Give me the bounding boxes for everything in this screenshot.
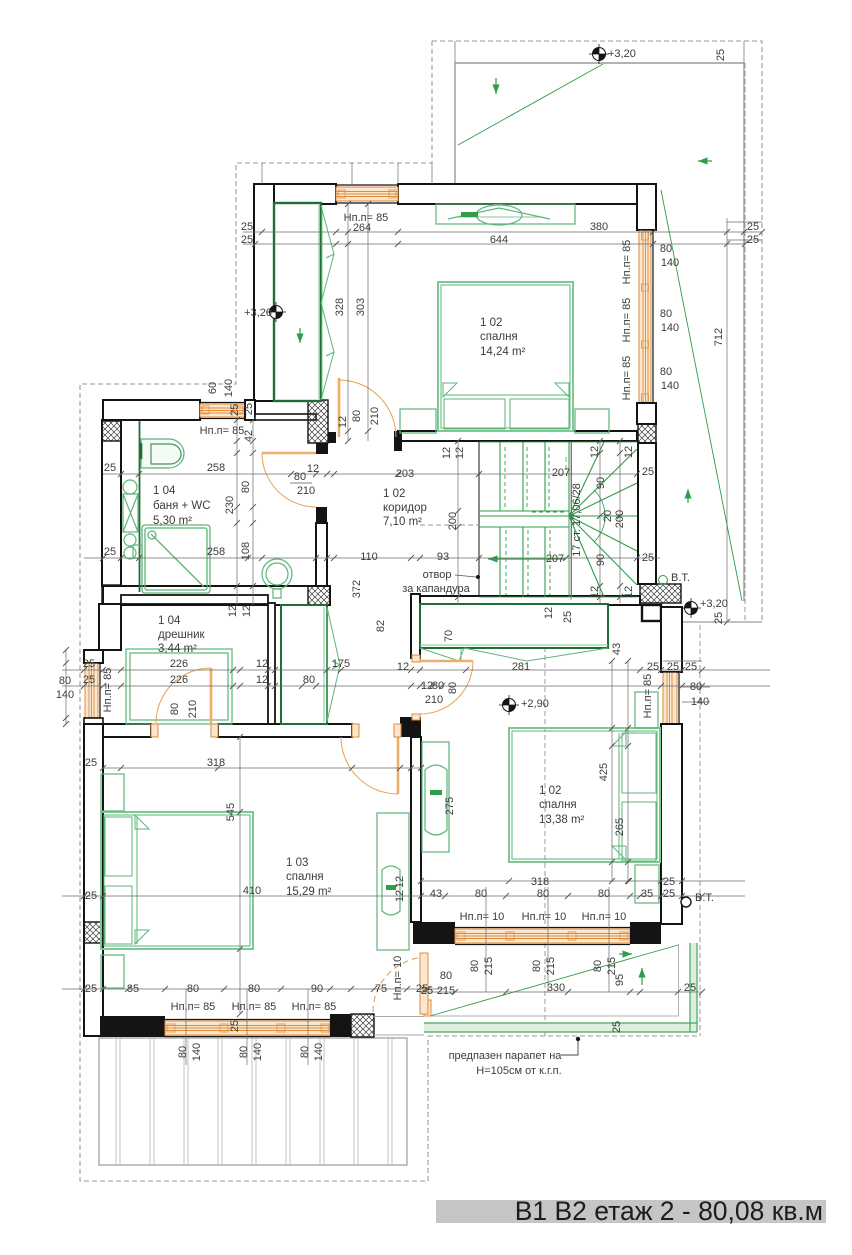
svg-text:43: 43 (611, 643, 623, 655)
svg-text:+2,90: +2,90 (521, 698, 549, 710)
svg-text:за капандура: за капандура (402, 583, 470, 595)
svg-text:328: 328 (334, 298, 346, 316)
svg-text:80: 80 (531, 960, 543, 972)
svg-text:12: 12 (227, 605, 239, 617)
svg-text:25: 25 (747, 234, 759, 246)
svg-text:215: 215 (606, 957, 618, 975)
svg-text:12: 12 (543, 607, 555, 619)
svg-text:80: 80 (303, 674, 315, 686)
svg-text:712: 712 (713, 328, 725, 346)
svg-text:80: 80 (660, 243, 672, 255)
svg-text:Нп.п= 85: Нп.п= 85 (292, 1001, 337, 1013)
svg-text:70: 70 (443, 630, 455, 642)
svg-text:140: 140 (223, 379, 235, 397)
svg-text:644: 644 (490, 234, 508, 246)
svg-text:380: 380 (590, 221, 608, 233)
svg-text:25: 25 (229, 404, 241, 416)
svg-text:210: 210 (425, 694, 443, 706)
svg-text:258: 258 (207, 546, 225, 558)
svg-text:спалня: спалня (539, 799, 577, 811)
svg-text:25: 25 (713, 612, 725, 624)
svg-text:80: 80 (59, 675, 71, 687)
svg-text:25: 25 (83, 658, 95, 670)
svg-text:140: 140 (661, 257, 679, 269)
svg-text:1 03: 1 03 (286, 857, 308, 869)
svg-text:80: 80 (177, 1046, 189, 1058)
svg-text:20: 20 (602, 510, 614, 522)
svg-text:+3,20: +3,20 (608, 48, 636, 60)
svg-text:Нп.п= 85: Нп.п= 85 (621, 240, 633, 285)
svg-text:1 02: 1 02 (383, 488, 405, 500)
svg-text:80: 80 (447, 682, 459, 694)
svg-text:80: 80 (351, 410, 363, 422)
svg-text:25: 25 (229, 1020, 241, 1032)
svg-text:15,29 m²: 15,29 m² (286, 886, 332, 898)
svg-text:60: 60 (207, 382, 219, 394)
svg-text:25: 25 (642, 552, 654, 564)
svg-text:12: 12 (454, 447, 466, 459)
svg-text:264: 264 (353, 222, 371, 234)
svg-text:425: 425 (598, 763, 610, 781)
svg-text:12: 12 (441, 447, 453, 459)
svg-text:80: 80 (592, 960, 604, 972)
svg-text:Нп.п= 10: Нп.п= 10 (522, 911, 567, 923)
svg-text:Нп.п= 10: Нп.п= 10 (460, 911, 505, 923)
svg-text:25: 25 (663, 888, 675, 900)
svg-text:12: 12 (589, 586, 601, 598)
svg-text:25: 25 (642, 466, 654, 478)
svg-text:25: 25 (85, 757, 97, 769)
svg-text:12: 12 (337, 416, 349, 428)
svg-text:1 04: 1 04 (158, 615, 181, 627)
svg-text:Нп.п= 85: Нп.п= 85 (621, 356, 633, 401)
svg-text:25: 25 (562, 611, 574, 623)
svg-text:Нп.п= 85: Нп.п= 85 (621, 298, 633, 343)
svg-text:25: 25 (685, 661, 697, 673)
svg-text:90: 90 (311, 983, 323, 995)
svg-text:Нп.п= 85: Нп.п= 85 (171, 1001, 216, 1013)
svg-text:12: 12 (623, 586, 635, 598)
svg-text:12: 12 (241, 605, 253, 617)
svg-text:12: 12 (256, 658, 268, 670)
svg-text:82: 82 (375, 620, 387, 632)
svg-text:25: 25 (416, 983, 428, 995)
svg-text:25: 25 (747, 221, 759, 233)
svg-text:80: 80 (598, 888, 610, 900)
svg-text:318: 318 (531, 876, 549, 888)
svg-text:265: 265 (614, 818, 626, 836)
svg-text:25: 25 (715, 49, 727, 61)
svg-text:226: 226 (170, 658, 188, 670)
svg-text:80: 80 (294, 471, 306, 483)
svg-text:5,30 m²: 5,30 m² (153, 515, 192, 527)
svg-text:90: 90 (595, 554, 607, 566)
svg-text:25: 25 (241, 234, 253, 246)
svg-text:140: 140 (313, 1043, 325, 1061)
svg-text:17 ст. 17,06/28: 17 ст. 17,06/28 (571, 483, 583, 557)
svg-text:+3,20: +3,20 (244, 307, 272, 319)
svg-text:25: 25 (85, 890, 97, 902)
svg-text:Нп.п= 85: Нп.п= 85 (642, 674, 654, 719)
svg-text:отвор: отвор (423, 569, 452, 581)
svg-text:80: 80 (475, 888, 487, 900)
svg-text:140: 140 (252, 1043, 264, 1061)
svg-text:12: 12 (394, 876, 406, 888)
svg-text:210: 210 (297, 485, 315, 497)
svg-text:226: 226 (170, 674, 188, 686)
svg-text:207: 207 (552, 467, 570, 479)
svg-text:В.Т.: В.Т. (671, 572, 690, 584)
svg-text:140: 140 (191, 1043, 203, 1061)
svg-text:25: 25 (104, 546, 116, 558)
svg-text:90: 90 (595, 477, 607, 489)
svg-text:258: 258 (207, 462, 225, 474)
svg-text:215: 215 (545, 957, 557, 975)
svg-text:80: 80 (440, 970, 452, 982)
svg-text:Нп.п= 10: Нп.п= 10 (582, 911, 627, 923)
svg-text:12: 12 (394, 890, 406, 902)
svg-text:80: 80 (299, 1046, 311, 1058)
svg-text:140: 140 (661, 322, 679, 334)
svg-text:330: 330 (547, 982, 565, 994)
svg-text:210: 210 (369, 407, 381, 425)
svg-text:25: 25 (104, 462, 116, 474)
svg-text:210: 210 (187, 700, 199, 718)
svg-text:200: 200 (614, 510, 626, 528)
svg-text:1 02: 1 02 (480, 317, 502, 329)
svg-text:Нп.п= 85: Нп.п= 85 (232, 1001, 277, 1013)
svg-text:25: 25 (85, 983, 97, 995)
svg-text:12: 12 (589, 446, 601, 458)
svg-text:Н=105см от к.г.п.: Н=105см от к.г.п. (476, 1065, 561, 1077)
svg-text:спалня: спалня (480, 331, 518, 343)
svg-text:80: 80 (660, 366, 672, 378)
svg-text:коридор: коридор (383, 502, 427, 514)
svg-text:140: 140 (56, 689, 74, 701)
svg-text:80: 80 (248, 983, 260, 995)
svg-text:спалня: спалня (286, 871, 324, 883)
svg-text:80: 80 (240, 481, 252, 493)
svg-text:Нп.п= 85: Нп.п= 85 (200, 425, 245, 437)
svg-text:230: 230 (224, 496, 236, 514)
svg-text:80: 80 (660, 308, 672, 320)
svg-text:3,44 m²: 3,44 m² (158, 643, 197, 655)
svg-text:баня + WC: баня + WC (153, 500, 211, 512)
svg-text:12: 12 (397, 661, 409, 673)
svg-text:1 04: 1 04 (153, 485, 176, 497)
svg-text:75: 75 (375, 983, 387, 995)
svg-text:Нп.п= 85: Нп.п= 85 (102, 668, 114, 713)
svg-text:80: 80 (690, 681, 702, 693)
svg-text:108: 108 (240, 542, 252, 560)
svg-text:80: 80 (469, 960, 481, 972)
svg-text:25: 25 (663, 876, 675, 888)
svg-text:110: 110 (360, 551, 378, 563)
svg-text:318: 318 (207, 757, 225, 769)
svg-text:В1 В2 етаж 2 - 80,08 кв.м: В1 В2 етаж 2 - 80,08 кв.м (515, 1196, 823, 1226)
svg-text:12: 12 (256, 674, 268, 686)
svg-text:35: 35 (641, 888, 653, 900)
svg-text:93: 93 (437, 551, 449, 563)
svg-text:1 02: 1 02 (539, 785, 561, 797)
svg-text:43: 43 (430, 888, 442, 900)
svg-text:140: 140 (691, 696, 709, 708)
svg-text:80: 80 (187, 983, 199, 995)
svg-text:207: 207 (546, 553, 564, 565)
svg-text:372: 372 (351, 580, 363, 598)
svg-text:7,10 m²: 7,10 m² (383, 516, 422, 528)
svg-text:25: 25 (83, 674, 95, 686)
svg-text:25: 25 (684, 982, 696, 994)
svg-text:281: 281 (512, 661, 530, 673)
svg-text:80: 80 (169, 703, 181, 715)
svg-text:25: 25 (611, 1021, 623, 1033)
svg-text:85: 85 (127, 983, 139, 995)
svg-text:предпазен парапет на: предпазен парапет на (449, 1050, 563, 1062)
svg-text:95: 95 (614, 974, 626, 986)
svg-text:303: 303 (355, 298, 367, 316)
svg-text:80: 80 (238, 1046, 250, 1058)
svg-text:175: 175 (332, 658, 350, 670)
svg-text:Нп.п= 10: Нп.п= 10 (392, 956, 404, 1001)
svg-text:545: 545 (225, 803, 237, 821)
svg-text:80: 80 (537, 888, 549, 900)
svg-text:140: 140 (661, 380, 679, 392)
svg-text:25: 25 (647, 661, 659, 673)
svg-text:25: 25 (241, 221, 253, 233)
svg-text:+3,20: +3,20 (700, 598, 728, 610)
svg-text:410: 410 (243, 885, 261, 897)
svg-text:25: 25 (243, 403, 255, 415)
svg-text:215: 215 (483, 957, 495, 975)
svg-text:14,24 m²: 14,24 m² (480, 346, 526, 358)
svg-text:275: 275 (444, 797, 456, 815)
svg-text:12: 12 (623, 446, 635, 458)
svg-text:13,38 m²: 13,38 m² (539, 814, 585, 826)
svg-text:дрешник: дрешник (158, 629, 206, 641)
svg-text:25: 25 (667, 661, 679, 673)
